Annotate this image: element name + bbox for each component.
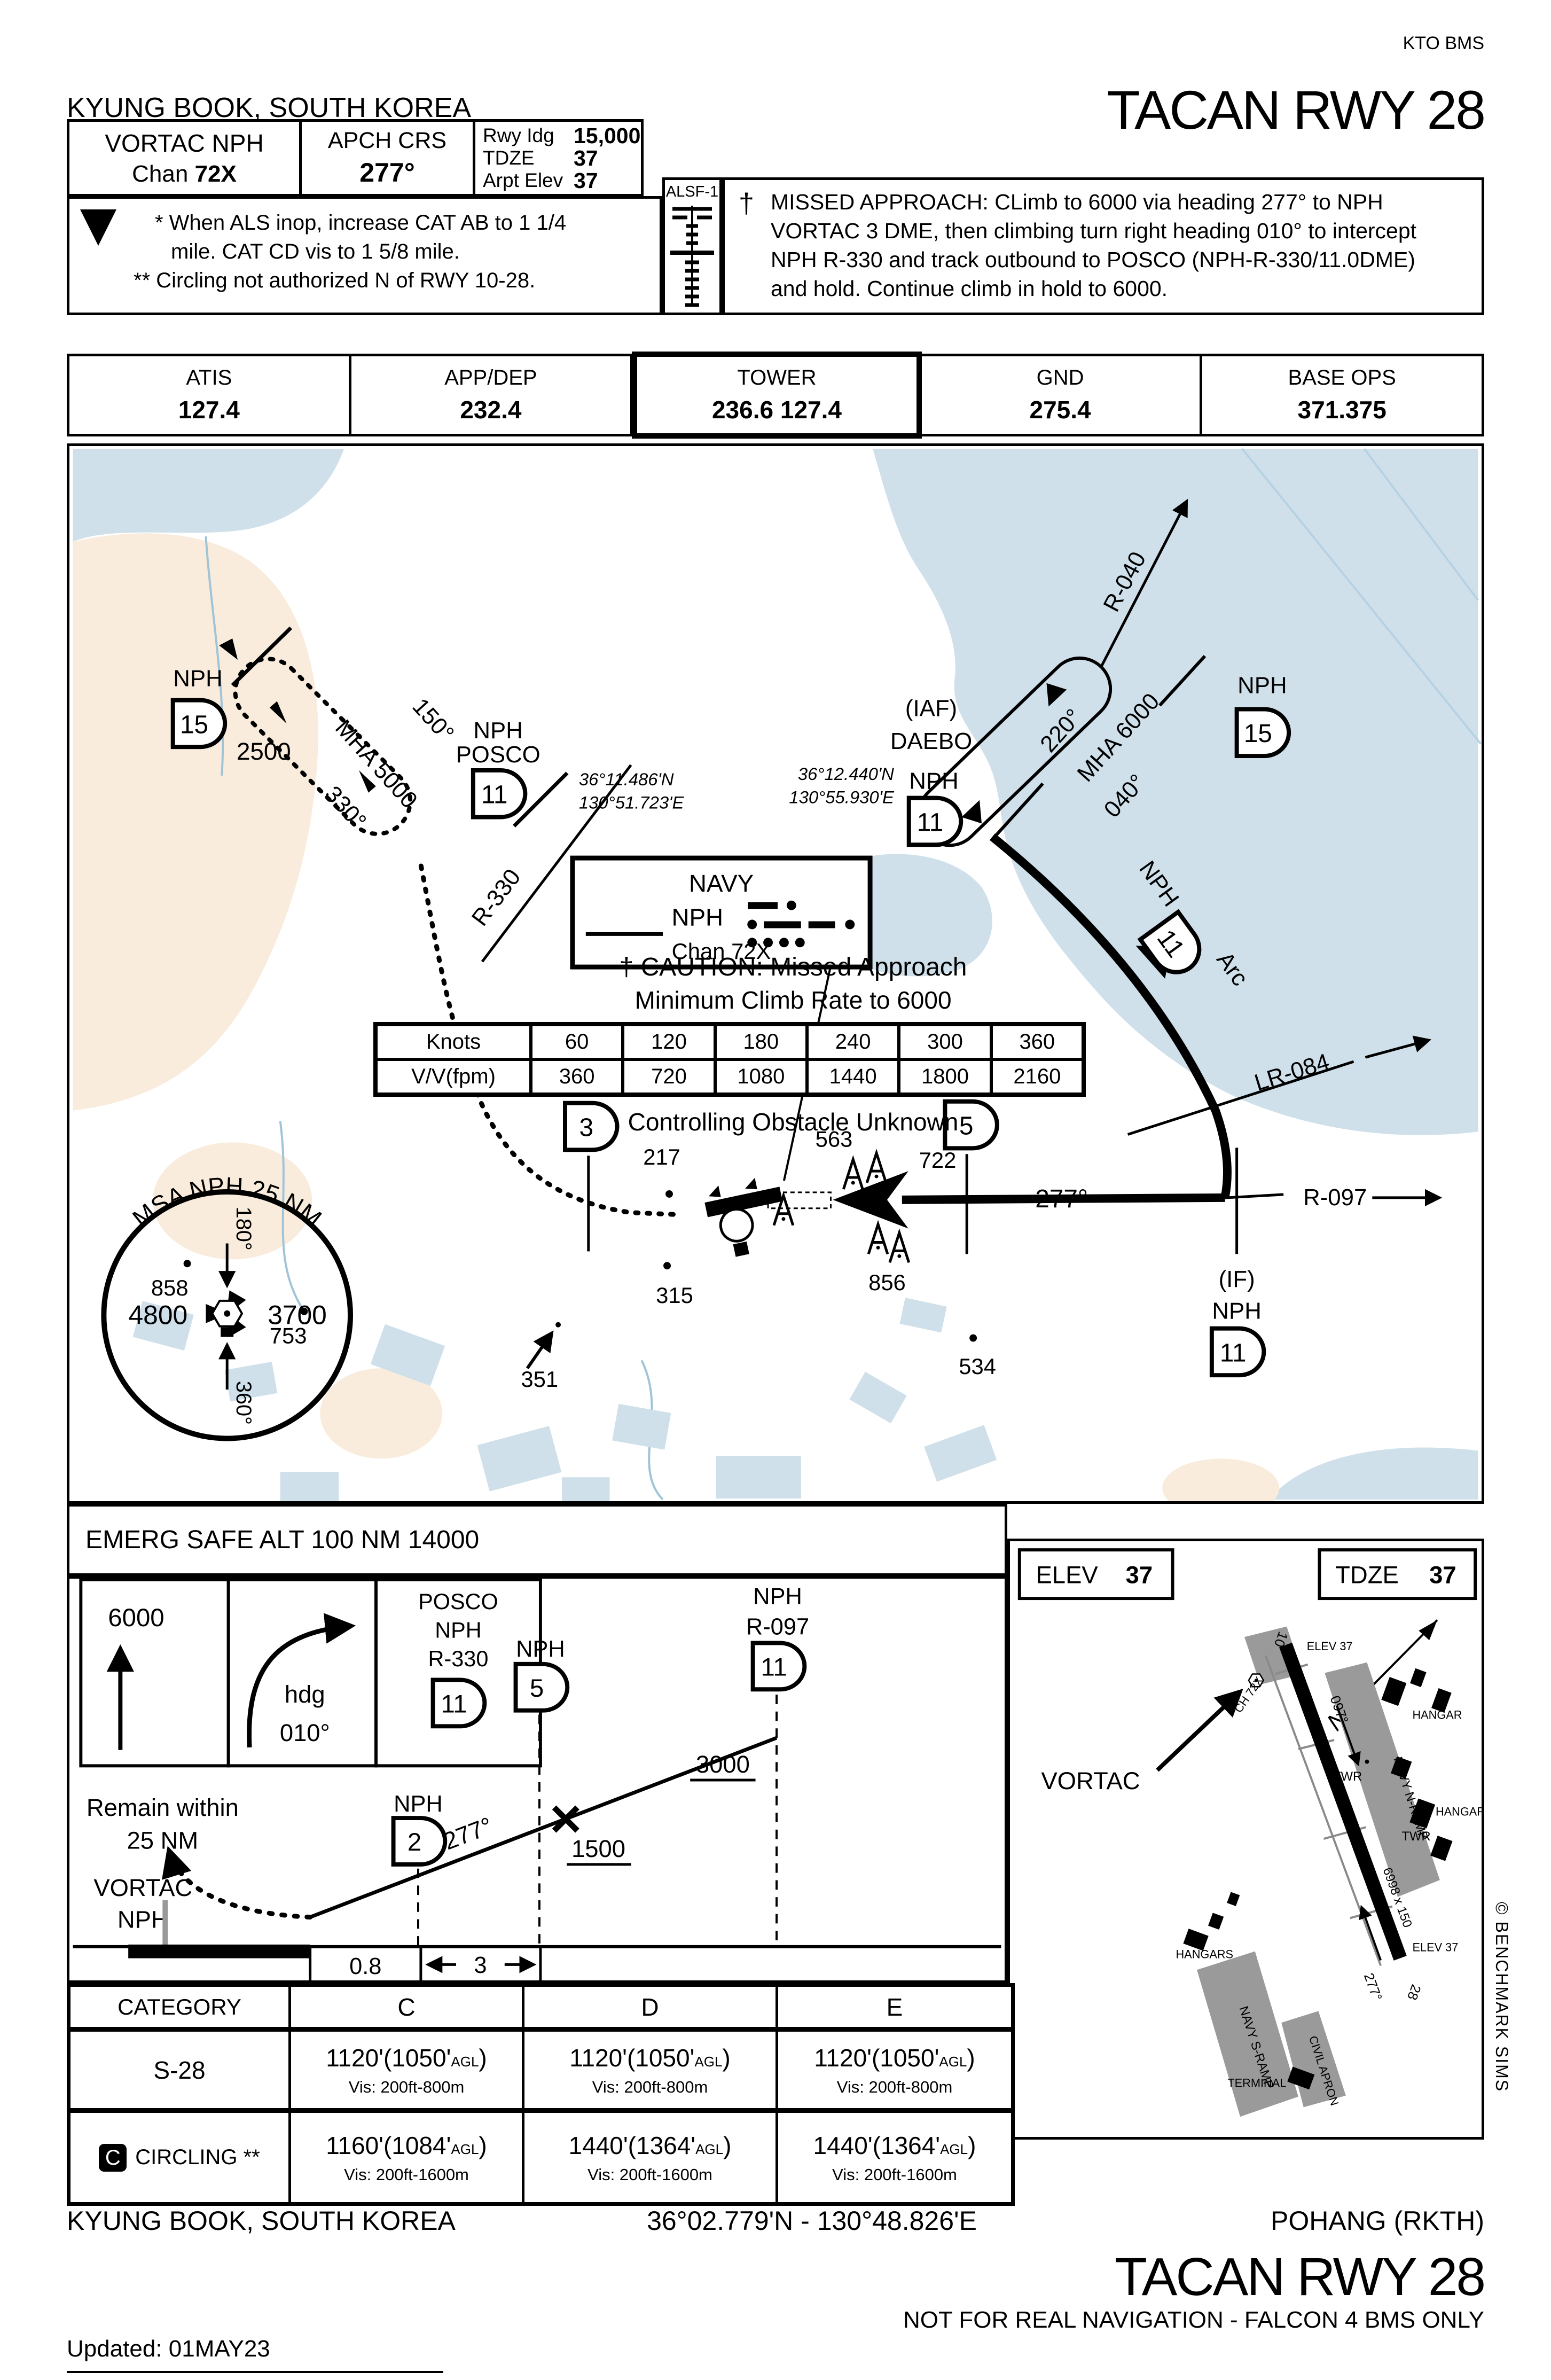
runway-course-277: 277° — [1361, 1971, 1384, 2003]
climb-vv: 1800 — [899, 1059, 991, 1094]
obstacle-dot — [969, 1335, 977, 1342]
freq-label: APP/DEP — [444, 366, 537, 390]
note-1: * When ALS inop, increase CAT AB to 1 1/… — [134, 208, 654, 237]
freq-appdep: APP/DEP232.4 — [351, 356, 633, 434]
freq-tower: TOWER236.6 127.4 — [632, 352, 922, 439]
posco-hold-alt: 2500 — [237, 738, 291, 765]
minimums-header-e: E — [778, 1987, 1011, 2032]
procedure-title: TACAN RWY 28 — [801, 79, 1484, 142]
climb-knots-label: Knots — [376, 1025, 531, 1059]
daebo-dme: 11 — [917, 808, 944, 837]
runway-28-number: 28 — [1404, 1983, 1423, 2002]
obstacle-elevation: 858 — [151, 1275, 189, 1300]
vortac-line2: NPH — [117, 1906, 169, 1933]
footer-airport: POHANG (RKTH) — [1175, 2205, 1484, 2236]
land-area — [73, 533, 318, 1110]
minimums-header-d: D — [524, 1987, 778, 2032]
hangars-label: HANGARS — [1436, 1805, 1482, 1818]
daebo-lat: 36°12.440'N — [798, 764, 894, 784]
facility-channel: Chan 72X — [132, 161, 237, 188]
freq-label: GND — [1037, 366, 1084, 390]
freq-value: 275.4 — [1030, 395, 1091, 424]
profile-view: 6000 hdg 010° POSCO NPH R-330 11 Remain … — [67, 1576, 1007, 1983]
climb-rate-table: Knots 60 120 180 240 300 360 V/V(fpm) 36… — [373, 1022, 1086, 1097]
daebo-name: DAEBO — [890, 728, 972, 754]
climb-knots: 240 — [807, 1025, 899, 1059]
daebo-nph: NPH — [909, 768, 958, 794]
obstacle-elevation: 856 — [868, 1270, 906, 1295]
missed-line-1: MISSED APPROACH: CLimb to 6000 via headi… — [771, 188, 1473, 216]
apch-crs-label: APCH CRS — [328, 128, 446, 154]
hangar-label: HANGAR — [1412, 1708, 1462, 1722]
obstacle-elevation: 722 — [919, 1148, 957, 1173]
climb-vv: 1440 — [807, 1059, 899, 1094]
posco-dme: 11 — [481, 781, 508, 809]
dagger-icon: † — [739, 188, 754, 220]
copyright-text: © BENCHMARK SIMS — [1490, 1902, 1511, 2180]
controlling-obstacle-note: Controlling Obstacle Unknown — [377, 1107, 1210, 1136]
tdze-label: TDZE — [1335, 1561, 1399, 1588]
holding-arrow — [961, 800, 982, 824]
nph15L-dme: 15 — [180, 711, 208, 739]
freq-gnd: GND275.4 — [921, 356, 1203, 434]
alsf1-lighting-icon — [665, 201, 719, 311]
posco-line1: POSCO — [418, 1589, 498, 1614]
tower-obstacle-icon — [868, 1224, 888, 1254]
r330-label: R-330 — [467, 864, 526, 931]
notes-box: T * When ALS inop, increase CAT AB to 1 … — [67, 196, 662, 315]
missed-hdg-value: 010° — [280, 1719, 330, 1746]
vortac-arrow — [1157, 1692, 1239, 1770]
footer-coordinates: 36°02.779'N - 130°48.826'E — [534, 2205, 1090, 2236]
freq-label: ATIS — [186, 366, 232, 390]
map-x-icon — [554, 1807, 577, 1830]
procedure-data-table: VORTAC NPH Chan 72X APCH CRS 277° Rwy Id… — [67, 119, 644, 197]
course-arrowhead — [833, 1171, 908, 1228]
missed-approach-path — [169, 1852, 310, 1917]
footer-city: KYUNG BOOK, SOUTH KOREA — [67, 2205, 456, 2236]
freq-atis: ATIS127.4 — [69, 356, 351, 434]
mda-1500: 1500 — [571, 1835, 625, 1862]
minimums-circling-c: 1160'(1084'AGL) Vis: 200ft-1600m — [291, 2113, 524, 2202]
elev-value: 37 — [1126, 1561, 1153, 1588]
arpt-elev-value: 37 — [574, 169, 640, 192]
freq-value: 127.4 — [178, 395, 240, 424]
freq-value: 232.4 — [460, 395, 521, 424]
nph15R-name: NPH — [1237, 673, 1287, 699]
remain-line2: 25 NM — [127, 1827, 198, 1854]
course-277-label: 277° — [1035, 1185, 1088, 1213]
vortac-icon — [206, 1290, 246, 1337]
msa-west-altitude: 4800 — [129, 1300, 188, 1330]
r097fix-dme: 11 — [761, 1653, 787, 1682]
lighting-box: ALSF-1 — [662, 177, 722, 315]
posco-line2: NPH — [435, 1618, 482, 1643]
rwy-ldg-value: 15,000 — [574, 124, 640, 147]
obstacle-dot — [663, 1262, 671, 1269]
climb-vv: 2160 — [991, 1059, 1083, 1094]
r097fix-radial: R-097 — [746, 1614, 809, 1640]
missed-line-2: VORTAC 3 DME, then climbing turn right h… — [771, 216, 1473, 245]
minimums-header-category: CATEGORY — [70, 1987, 291, 2032]
minimums-s28-e: 1120'(1050'AGL) Vis: 200ft-800m — [778, 2032, 1011, 2113]
twr-dot — [1365, 1760, 1369, 1764]
facility-name: VORTAC NPH — [105, 129, 263, 158]
climb-vv: 1080 — [715, 1059, 807, 1094]
vortac-label: VORTAC — [1041, 1767, 1140, 1794]
missed-line-3: NPH R-330 and track outbound to POSCO (N… — [771, 245, 1473, 274]
climb-knots: 120 — [623, 1025, 715, 1059]
caution-line-1: † CAUTION: Missed Approach — [377, 953, 1210, 982]
airport-symbol — [702, 1173, 792, 1261]
nph15L-name: NPH — [173, 666, 222, 692]
r097-label: R-097 — [1303, 1184, 1367, 1211]
threshold-elev: ELEV 37 — [1307, 1640, 1353, 1653]
climb-vv: 360 — [531, 1059, 623, 1094]
obstacle-dot — [555, 1322, 561, 1328]
distance-0-8: 0.8 — [349, 1954, 381, 1979]
freq-label: BASE OPS — [1288, 366, 1396, 390]
posco-hold-outbound: 330° — [319, 781, 371, 834]
missed-approach-box: † MISSED APPROACH: CLimb to 6000 via hea… — [722, 177, 1484, 315]
tower-obstacle-icon — [890, 1233, 909, 1263]
note-3: ** Circling not authorized N of RWY 10-2… — [134, 266, 654, 295]
sea-area-south — [1268, 1448, 1478, 1500]
lighted-obstacle-icon — [527, 1334, 551, 1369]
minimums-table: CATEGORY C D E S-28 1120'(1050'AGL) Vis:… — [67, 1983, 1015, 2206]
navaid-ident: NPH — [671, 903, 723, 931]
approach-chart-page: KTO BMS KYUNG BOOK, SOUTH KOREA TACAN RW… — [0, 0, 1551, 2380]
missed-line-4: and hold. Continue climb in hold to 6000… — [771, 274, 1473, 303]
posco-hold-inbound: 150° — [408, 693, 459, 747]
water-corner-nw — [73, 449, 344, 542]
obstacle-elevation: 351 — [521, 1367, 558, 1392]
freq-label: TOWER — [737, 366, 816, 390]
urban-patches — [133, 1298, 997, 1501]
freq-value: 236.6 127.4 — [712, 395, 842, 424]
obstacle-dot — [184, 1260, 191, 1267]
climb-knots: 360 — [991, 1025, 1083, 1059]
chart-series-label: KTO BMS — [1175, 33, 1484, 54]
missed-hdg-label: hdg — [285, 1681, 325, 1708]
if-dme: 11 — [1220, 1339, 1247, 1367]
posco-lon: 130°51.723'E — [579, 793, 685, 813]
facility-cell: VORTAC NPH Chan 72X — [69, 122, 302, 194]
nph2-name: NPH — [394, 1791, 443, 1817]
minimums-s28-d: 1120'(1050'AGL) Vis: 200ft-800m — [524, 2032, 778, 2113]
runway-data-cell: Rwy Idg15,000 TDZE37 Arpt Elev37 — [475, 122, 648, 194]
emergency-safe-altitude: EMERG SAFE ALT 100 NM 14000 — [67, 1504, 1007, 1576]
profile-drawing: 6000 hdg 010° POSCO NPH R-330 11 Remain … — [69, 1579, 1005, 1980]
minimums-circling-d: 1440'(1364'AGL) Vis: 200ft-1600m — [524, 2113, 778, 2202]
obstacle-elevation: 534 — [959, 1354, 996, 1379]
frequency-strip: ATIS127.4 APP/DEP232.4 TOWER236.6 127.4 … — [67, 354, 1484, 436]
climb-vv-label: V/V(fpm) — [376, 1059, 531, 1094]
tower-label: TWR — [1333, 1770, 1362, 1784]
obstacle-elevation: 217 — [643, 1144, 680, 1169]
posco-name: POSCO — [456, 742, 540, 768]
airport-sketch: ELEV 37 TDZE 37 N 10 28 ELEV 37 ELEV 37 … — [1010, 1541, 1482, 2137]
missed-altitude: 6000 — [108, 1604, 164, 1632]
tdze-value: 37 — [1429, 1561, 1456, 1588]
hangars-label: HANGARS — [1176, 1947, 1233, 1961]
tower-obstacle-icon — [843, 1159, 863, 1189]
airport-sketch-panel: ELEV 37 TDZE 37 N 10 28 ELEV 37 ELEV 37 … — [1007, 1539, 1484, 2140]
elev-label: ELEV — [1036, 1561, 1098, 1588]
runway-profile-bar — [128, 1945, 310, 1958]
climb-knots: 300 — [899, 1025, 991, 1059]
svg-text:T: T — [92, 210, 105, 233]
if-nph: NPH — [1212, 1298, 1261, 1324]
chan-label: Chan — [132, 161, 188, 187]
daebo-lon: 130°55.930'E — [789, 787, 895, 807]
rwy-ldg-label: Rwy Idg — [483, 124, 574, 147]
daebo-iaf: (IAF) — [905, 695, 957, 721]
footer-title: TACAN RWY 28 — [801, 2246, 1484, 2308]
climb-knots: 60 — [531, 1025, 623, 1059]
ta-triangle-icon: T — [77, 207, 120, 250]
minimums-circling-e: 1440'(1364'AGL) Vis: 200ft-1600m — [778, 2113, 1011, 2202]
land-patch — [1162, 1458, 1279, 1501]
posco-lat: 36°11.486'N — [579, 769, 674, 789]
disclaimer: NOT FOR REAL NAVIGATION - FALCON 4 BMS O… — [641, 2307, 1484, 2334]
remain-line1: Remain within — [87, 1794, 239, 1821]
obstacle-elevation: 315 — [656, 1283, 693, 1308]
approach-course-cell: APCH CRS 277° — [302, 122, 475, 194]
r097fix-name: NPH — [753, 1583, 802, 1609]
tower-obstacle-icon — [867, 1153, 886, 1183]
threshold-elev: ELEV 37 — [1412, 1941, 1458, 1954]
tdze-label: TDZE — [483, 147, 574, 169]
posco-dme: 11 — [441, 1690, 467, 1719]
vortac-line1: VORTAC — [93, 1874, 192, 1901]
updated-date: Updated: 01MAY23 — [67, 2336, 270, 2362]
minimums-s28-c: 1120'(1050'AGL) Vis: 200ft-800m — [291, 2032, 524, 2113]
nph5-dme: 5 — [530, 1674, 544, 1703]
minimums-circling-category: C CIRCLING ** — [70, 2113, 291, 2202]
msa-south-course: 360° — [232, 1381, 255, 1425]
nph5-name: NPH — [516, 1636, 565, 1662]
climb-vv: 720 — [623, 1059, 715, 1094]
tdze-value: 37 — [574, 147, 640, 169]
navaid-info-box: NAVY NPH Chan 72X — [573, 858, 870, 967]
circling-icon: C — [99, 2144, 127, 2172]
navaid-service: NAVY — [689, 870, 754, 897]
if-tag: (IF) — [1219, 1266, 1255, 1292]
distance-3: 3 — [474, 1953, 487, 1978]
alt-3000: 3000 — [696, 1751, 750, 1778]
posco-line3: R-330 — [428, 1646, 489, 1671]
terminal-label: TERMINAL — [1227, 2077, 1286, 2090]
alsf-label: ALSF-1 — [665, 183, 719, 201]
minimums-header-c: C — [291, 1987, 524, 2032]
freq-baseops: BASE OPS371.375 — [1202, 356, 1482, 434]
posco-nph: NPH — [473, 717, 522, 744]
climb-knots: 180 — [715, 1025, 807, 1059]
freq-value: 371.375 — [1298, 395, 1386, 424]
msa-east-altitude: 3700 — [268, 1300, 327, 1330]
apch-crs-value: 277° — [359, 157, 414, 188]
nph15R-dme: 15 — [1244, 720, 1272, 748]
nph2-dme: 2 — [408, 1828, 421, 1856]
msa-north-course: 180° — [232, 1206, 255, 1250]
bottom-rule — [67, 2371, 443, 2373]
obstacle-dot — [665, 1190, 673, 1198]
caution-line-2: Minimum Climb Rate to 6000 — [377, 986, 1210, 1015]
note-2: mile. CAT CD vis to 1 5/8 mile. — [134, 237, 654, 266]
chan-value: 72X — [195, 161, 237, 187]
plan-view: R-330 NPH 15 2500 150° MHA 5000 330° NPH… — [67, 443, 1484, 1504]
arpt-elev-label: Arpt Elev — [483, 169, 574, 192]
minimums-s28-category: S-28 — [70, 2032, 291, 2113]
